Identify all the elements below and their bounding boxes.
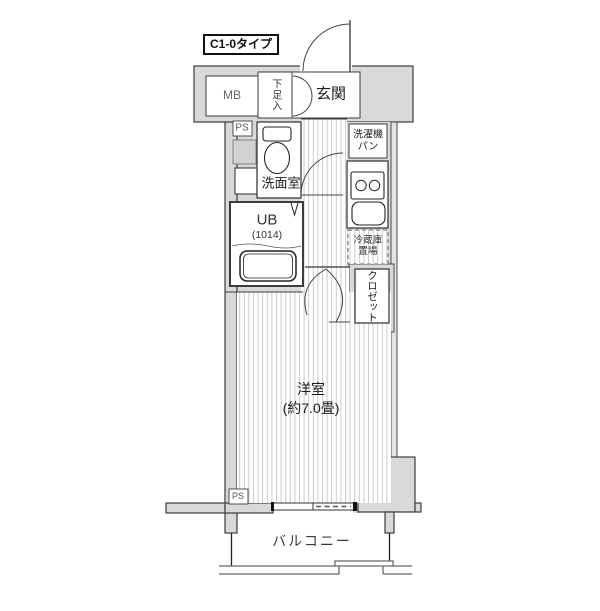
window-end-cap-right (353, 502, 357, 511)
railing-bottom-right (383, 566, 412, 574)
washbasin-box (235, 168, 258, 194)
western-room-size-label: (約7.0畳) (283, 400, 340, 416)
floorplan-canvas (0, 0, 600, 611)
ps-top-label: PS (235, 122, 248, 134)
hallway-floor (301, 119, 347, 267)
stove-icon (351, 172, 384, 199)
bottom-wall-left (225, 503, 273, 513)
sink-icon (352, 202, 385, 225)
railing-bottom-left (219, 566, 339, 574)
balcony-label: バルコニー (272, 533, 352, 549)
unit-bath-label: UB (257, 211, 278, 228)
washroom-label: 洗面室 (261, 177, 300, 192)
closet-label: クロゼット (366, 270, 378, 323)
ps-bottom-label: PS (232, 491, 244, 501)
balcony-right-wall-stub (385, 512, 394, 533)
mb-label: MB (223, 89, 241, 103)
meter-box-square (233, 140, 256, 164)
western-room-label: 洋室 (297, 381, 325, 397)
toilet-icon (263, 127, 291, 174)
neighbor-wall-stub (166, 503, 225, 513)
type-badge: C1-0タイプ (203, 34, 279, 55)
railing-bump (335, 561, 393, 566)
washer-pan-line2: パン (353, 141, 383, 153)
balcony-window (271, 502, 357, 511)
entrance-label: 玄関 (316, 85, 346, 102)
unit-bath-size-label: (1014) (252, 229, 282, 241)
floorplan-page: C1-0タイプ MB 下足入 玄関 PS 洗面室 UB (1014) 洗濯機 パ… (0, 0, 600, 611)
pillar-foot (415, 503, 421, 512)
fridge-space-label: 冷蔵庫 置場 (354, 236, 383, 258)
window-end-cap-left (271, 502, 274, 511)
fridge-line2: 置場 (354, 247, 383, 258)
shoe-cabinet-label: 下足入 (269, 79, 281, 112)
washer-pan-label: 洗濯機 パン (353, 130, 383, 153)
washer-pan-line1: 洗濯機 (353, 130, 383, 142)
